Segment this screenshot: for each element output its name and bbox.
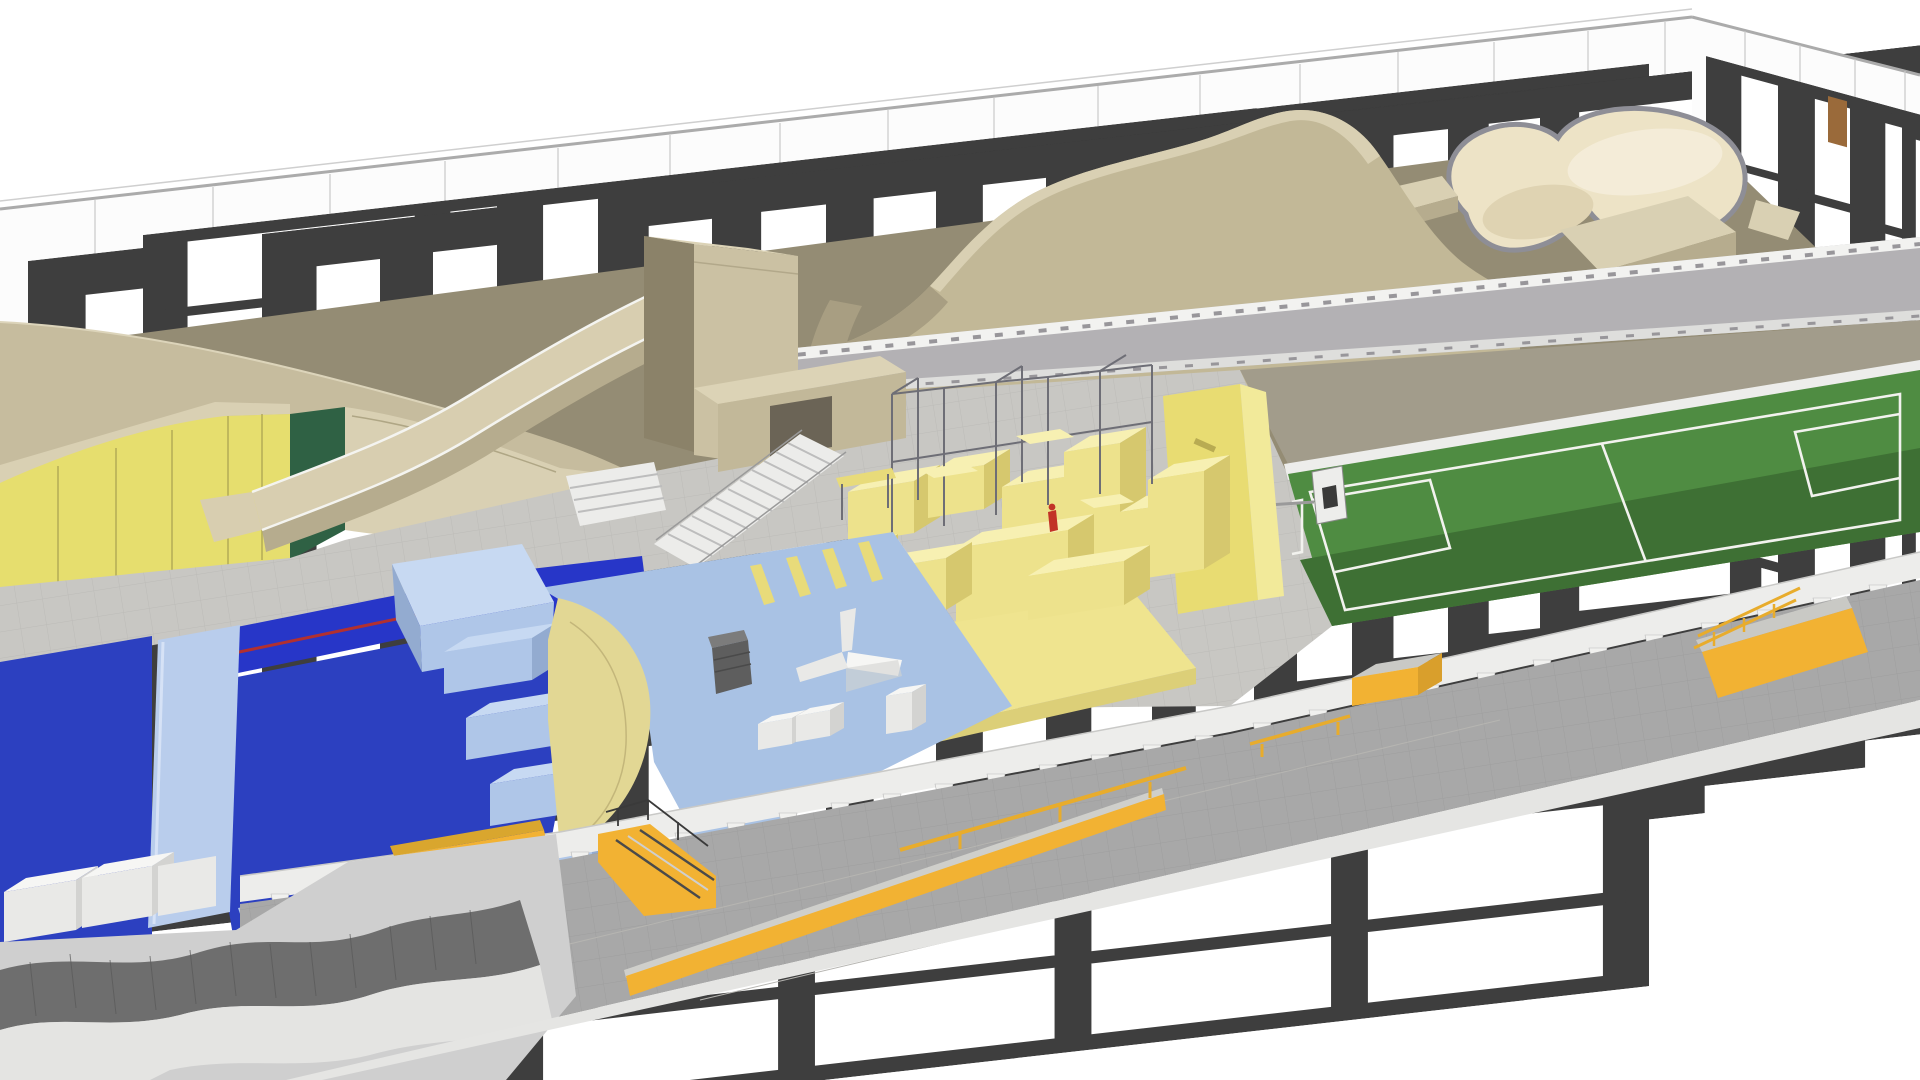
side-door (1828, 96, 1847, 147)
facility-3d-render (0, 0, 1920, 1080)
render-canvas (0, 0, 1920, 1080)
